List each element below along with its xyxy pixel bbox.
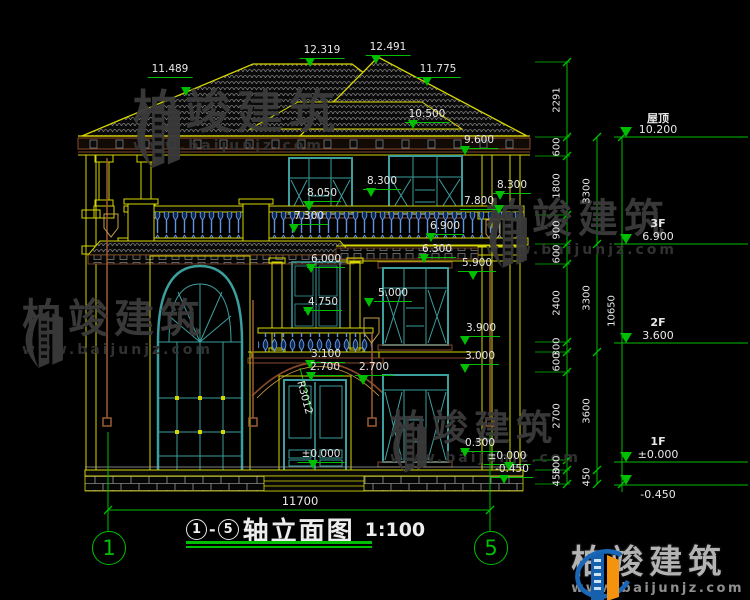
title-axis-from: 1: [186, 519, 207, 540]
decoration-layer: 11700 1 5 1 - 5 轴立面图 1:100: [0, 0, 750, 600]
title-underline: [186, 541, 372, 544]
title-dash: -: [209, 520, 216, 539]
title-underline: [186, 546, 372, 549]
drawing-scale: 1:100: [365, 519, 425, 541]
axis-bubble-1: 1: [92, 531, 126, 565]
baijun-logo: 柏竣建筑 www.baijunjz.com: [571, 545, 744, 596]
axis-bubble-5: 5: [474, 531, 508, 565]
overall-width-dimension: 11700: [282, 494, 319, 508]
cad-canvas: 柏竣建筑www.baijunjz.com柏竣建筑www.baijunjz.com…: [0, 0, 750, 600]
baijun-logo-icon: [571, 545, 633, 600]
title-axis-to: 5: [218, 519, 239, 540]
